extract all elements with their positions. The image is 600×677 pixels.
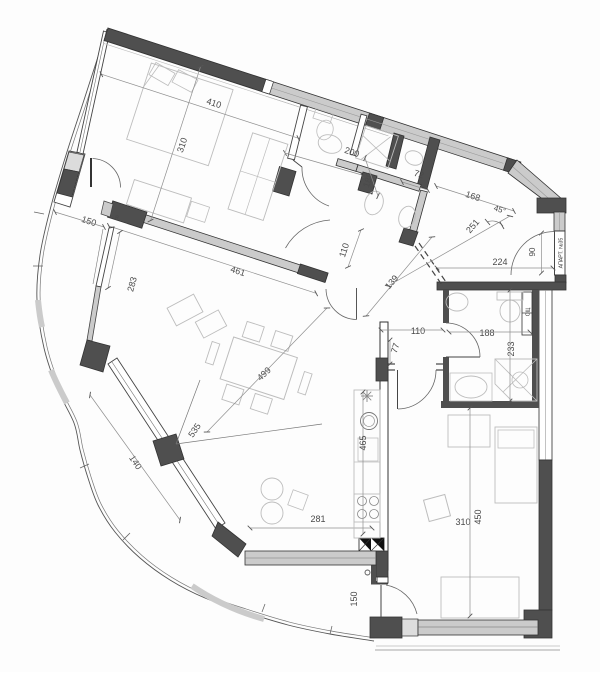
svg-text:310: 310 bbox=[455, 517, 470, 527]
svg-text:224: 224 bbox=[492, 257, 507, 267]
svg-text:ОЩ: ОЩ bbox=[526, 307, 532, 316]
svg-text:110: 110 bbox=[411, 326, 425, 336]
svg-text:90: 90 bbox=[528, 247, 537, 256]
svg-text:465: 465 bbox=[358, 435, 368, 450]
svg-text:150: 150 bbox=[349, 591, 359, 606]
svg-text:450: 450 bbox=[473, 509, 483, 524]
svg-text:281: 281 bbox=[310, 514, 325, 524]
svg-text:233: 233 bbox=[506, 341, 516, 356]
svg-text:188: 188 bbox=[479, 328, 494, 338]
svg-text:АПАРТ. №35: АПАРТ. №35 bbox=[559, 238, 565, 269]
